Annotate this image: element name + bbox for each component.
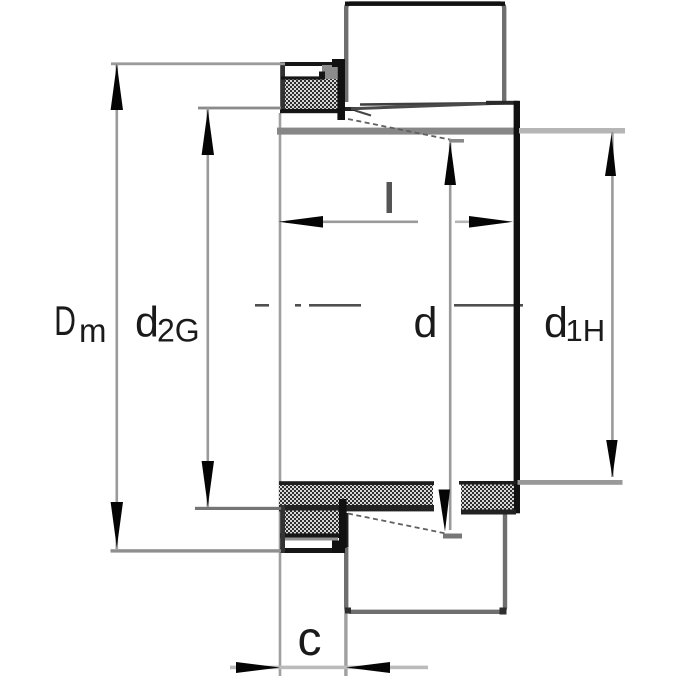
svg-text:d: d: [135, 299, 159, 347]
svg-text:1H: 1H: [566, 313, 606, 348]
svg-text:2G: 2G: [157, 313, 200, 349]
svg-text:d: d: [414, 299, 438, 347]
svg-text:c: c: [298, 613, 322, 666]
svg-text:m: m: [79, 312, 107, 349]
svg-text:d: d: [544, 299, 568, 347]
svg-text:D: D: [54, 297, 76, 344]
